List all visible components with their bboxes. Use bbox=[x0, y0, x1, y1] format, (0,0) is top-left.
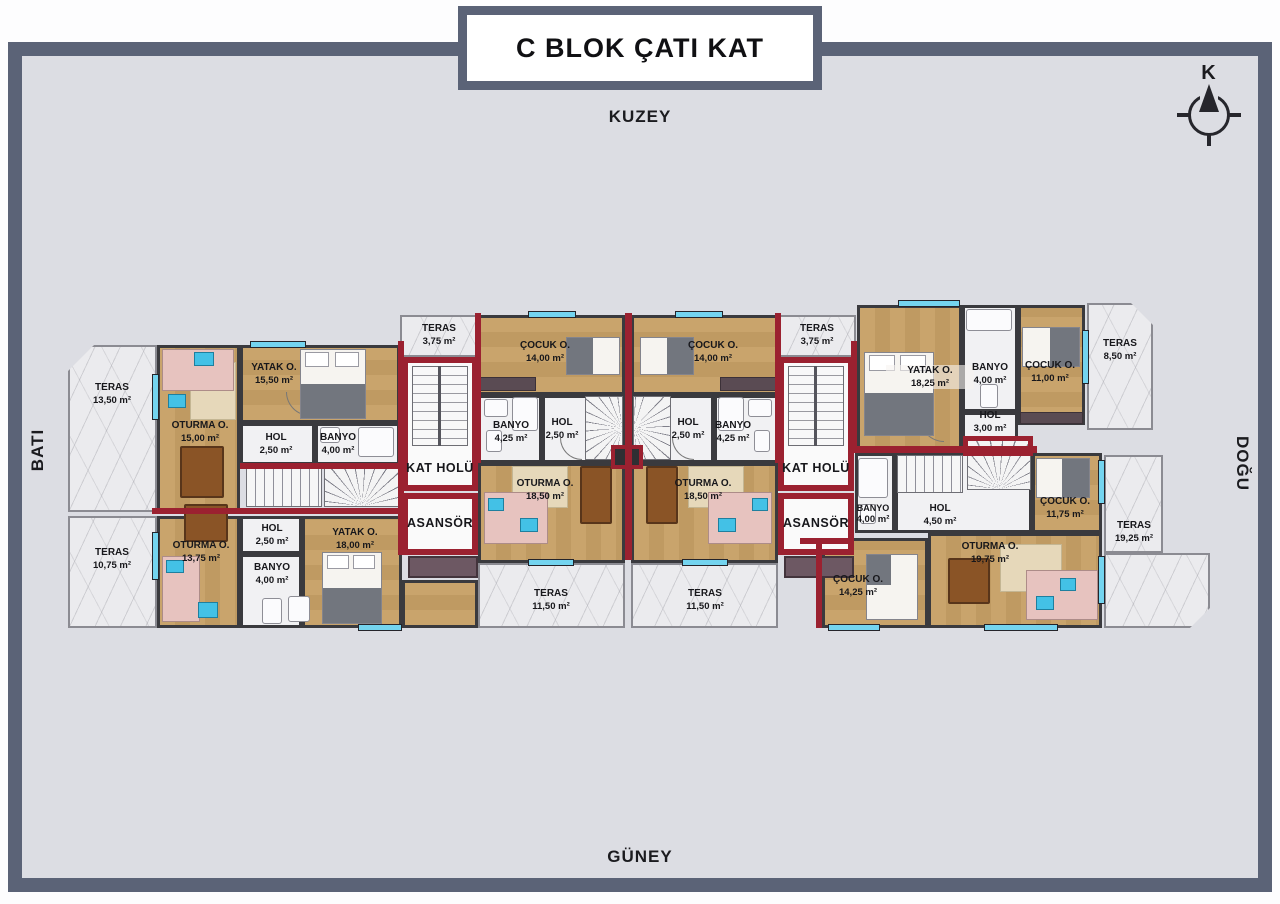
pillow-graphic bbox=[327, 555, 349, 569]
label-bath-se: BANYO4,00 m² bbox=[846, 503, 900, 526]
red-wall bbox=[152, 508, 404, 514]
window bbox=[528, 311, 576, 318]
label-bath-cl: BANYO4,25 m² bbox=[482, 420, 540, 444]
window bbox=[250, 341, 306, 348]
window bbox=[358, 624, 402, 631]
label-kids1-se: ÇOCUK O.11,75 m² bbox=[1026, 496, 1104, 520]
direction-north: KUZEY bbox=[540, 107, 740, 127]
label-terrace-se: TERAS19,25 m² bbox=[1098, 520, 1170, 544]
label-terrace-core-right: TERAS3,75 m² bbox=[780, 323, 854, 347]
label-bath-nw: BANYO4,00 m² bbox=[316, 432, 360, 456]
direction-west: BATI bbox=[28, 426, 48, 474]
wardrobe-graphic bbox=[1020, 412, 1083, 424]
stairs-left-divider bbox=[438, 366, 441, 446]
cushion-graphic bbox=[718, 518, 736, 532]
compass-tick-east bbox=[1229, 113, 1241, 117]
cushion-graphic bbox=[1036, 596, 1054, 610]
label-living-se: OTURMA O.19,75 m² bbox=[945, 541, 1035, 565]
title-box: C BLOK ÇATI KAT bbox=[458, 6, 822, 90]
label-terrace-cr: TERAS11,50 m² bbox=[660, 588, 750, 612]
sink-graphic bbox=[748, 399, 772, 417]
label-kids2-se: ÇOCUK O.14,25 m² bbox=[824, 574, 892, 598]
pillow-graphic bbox=[353, 555, 375, 569]
floor-plan-canvas: C BLOK ÇATI KAT KUZEY GÜNEY BATI DOĞU K bbox=[0, 0, 1280, 904]
label-bath-sw: BANYO4,00 m² bbox=[244, 562, 300, 586]
window bbox=[898, 300, 960, 307]
red-wall-central bbox=[625, 313, 632, 560]
cushion-graphic bbox=[1060, 578, 1076, 591]
compass-tick-south bbox=[1207, 134, 1211, 146]
terrace-se-lower bbox=[1104, 553, 1210, 628]
label-elevator-left: ASANSÖR bbox=[404, 516, 476, 530]
window bbox=[682, 559, 728, 566]
corridor-left bbox=[408, 556, 478, 578]
red-wall bbox=[851, 341, 857, 451]
bathtub-graphic bbox=[858, 458, 888, 498]
terrace-nw bbox=[68, 345, 157, 512]
red-wall bbox=[816, 538, 822, 628]
blanket-graphic bbox=[301, 384, 365, 418]
terrace-ne bbox=[1087, 303, 1153, 430]
blanket-graphic bbox=[323, 588, 381, 623]
label-living-cr: OTURMA O.18,50 m² bbox=[658, 478, 748, 502]
room-bedroom-sw-ext bbox=[402, 580, 478, 628]
label-hall-cl: HOL2,50 m² bbox=[538, 417, 586, 441]
dining-table-graphic bbox=[180, 446, 224, 498]
label-kids-cr: ÇOCUK O.14,00 m² bbox=[668, 340, 758, 364]
compass-north-letter: K bbox=[1180, 62, 1238, 85]
toilet-graphic bbox=[288, 596, 310, 622]
cushion-graphic bbox=[198, 602, 218, 618]
bathtub-graphic bbox=[966, 309, 1012, 331]
label-living-nw: OTURMA O.15,00 m² bbox=[160, 420, 240, 444]
label-bedroom-nw: YATAK O.15,50 m² bbox=[246, 362, 302, 386]
label-terrace-nw: TERAS13,50 m² bbox=[70, 382, 154, 406]
stairs-sw-fan-icon bbox=[324, 467, 400, 507]
blanket-graphic bbox=[865, 393, 933, 435]
bathtub-graphic bbox=[262, 598, 282, 624]
label-bedroom-sw: YATAK O.18,00 m² bbox=[312, 527, 398, 551]
label-terrace-cl: TERAS11,50 m² bbox=[506, 588, 596, 612]
toilet-graphic bbox=[980, 384, 998, 408]
stairs-sw-icon bbox=[246, 467, 322, 507]
label-hall-nw: HOL2,50 m² bbox=[246, 432, 306, 456]
label-hall-ne: HOL3,00 m² bbox=[960, 410, 1020, 434]
stairs-right-divider bbox=[814, 366, 817, 446]
cushion-graphic bbox=[520, 518, 538, 532]
pillow-graphic bbox=[305, 352, 329, 367]
label-elevator-right: ASANSÖR bbox=[780, 516, 852, 530]
label-stairwell-left: KAT HOLÜ bbox=[404, 461, 476, 475]
page-title: C BLOK ÇATI KAT bbox=[516, 33, 764, 64]
stairs-se-icon bbox=[897, 455, 963, 493]
terrace-sw bbox=[68, 516, 157, 628]
red-wall-stair-bump bbox=[963, 436, 1033, 456]
pillow-graphic bbox=[335, 352, 359, 367]
label-living-cl: OTURMA O.18,50 m² bbox=[500, 478, 590, 502]
blanket-graphic bbox=[1062, 459, 1089, 497]
window bbox=[984, 624, 1058, 631]
direction-south: GÜNEY bbox=[540, 847, 740, 867]
cushion-graphic bbox=[752, 498, 768, 511]
wardrobe-graphic bbox=[480, 377, 536, 391]
compass-needle-icon bbox=[1199, 84, 1219, 112]
label-bath-cr: BANYO4,25 m² bbox=[704, 420, 762, 444]
window bbox=[1098, 556, 1105, 604]
bathtub-graphic bbox=[358, 427, 394, 457]
sink-graphic bbox=[484, 399, 508, 417]
label-terrace-sw: TERAS10,75 m² bbox=[70, 547, 154, 571]
label-hall-se: HOL4,50 m² bbox=[908, 503, 972, 527]
red-wall bbox=[240, 463, 406, 469]
label-terrace-core-left: TERAS3,75 m² bbox=[402, 323, 476, 347]
label-terrace-ne: TERAS8,50 m² bbox=[1088, 338, 1152, 362]
direction-east: DOĞU bbox=[1232, 436, 1252, 484]
label-kids-ne: ÇOCUK O.11,00 m² bbox=[1012, 360, 1088, 384]
wardrobe-graphic bbox=[720, 377, 776, 391]
label-living-sw: OTURMA O.13,75 m² bbox=[162, 540, 240, 564]
label-kids-cl: ÇOCUK O.14,00 m² bbox=[500, 340, 590, 364]
window bbox=[675, 311, 723, 318]
red-wall bbox=[800, 538, 850, 544]
window bbox=[828, 624, 880, 631]
window bbox=[528, 559, 574, 566]
label-stairwell-right: KAT HOLÜ bbox=[780, 461, 852, 475]
compass-tick-west bbox=[1177, 113, 1189, 117]
cushion-graphic bbox=[168, 394, 186, 408]
label-hall-sw: HOL2,50 m² bbox=[244, 523, 300, 547]
cushion-graphic bbox=[194, 352, 214, 366]
